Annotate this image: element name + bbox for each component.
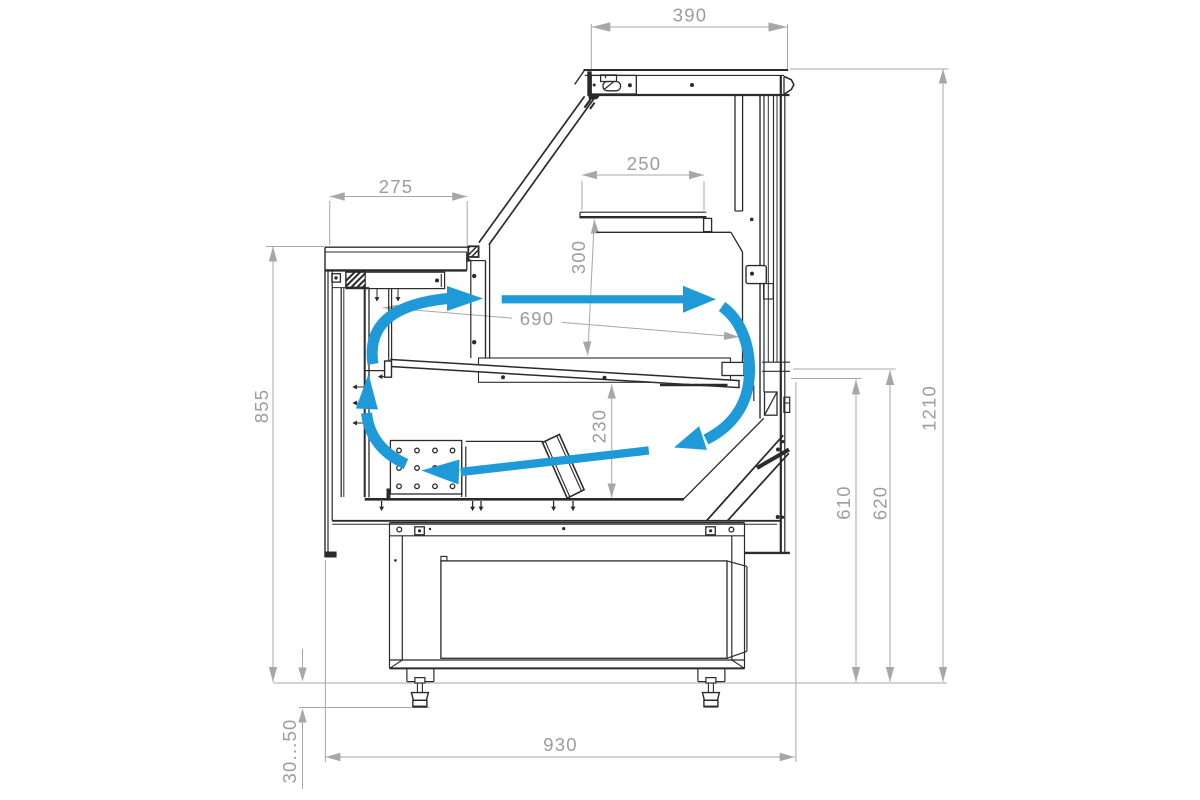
svg-text:690: 690 — [520, 308, 554, 329]
svg-text:390: 390 — [673, 4, 707, 25]
svg-text:1210: 1210 — [919, 385, 940, 431]
svg-text:610: 610 — [833, 485, 854, 519]
svg-text:300: 300 — [568, 240, 589, 274]
svg-text:250: 250 — [627, 153, 661, 174]
svg-text:230: 230 — [589, 409, 610, 443]
svg-text:30...50: 30...50 — [279, 719, 300, 784]
svg-text:855: 855 — [251, 389, 272, 423]
svg-text:620: 620 — [870, 486, 891, 520]
svg-text:930: 930 — [543, 734, 577, 755]
svg-text:275: 275 — [379, 176, 413, 197]
